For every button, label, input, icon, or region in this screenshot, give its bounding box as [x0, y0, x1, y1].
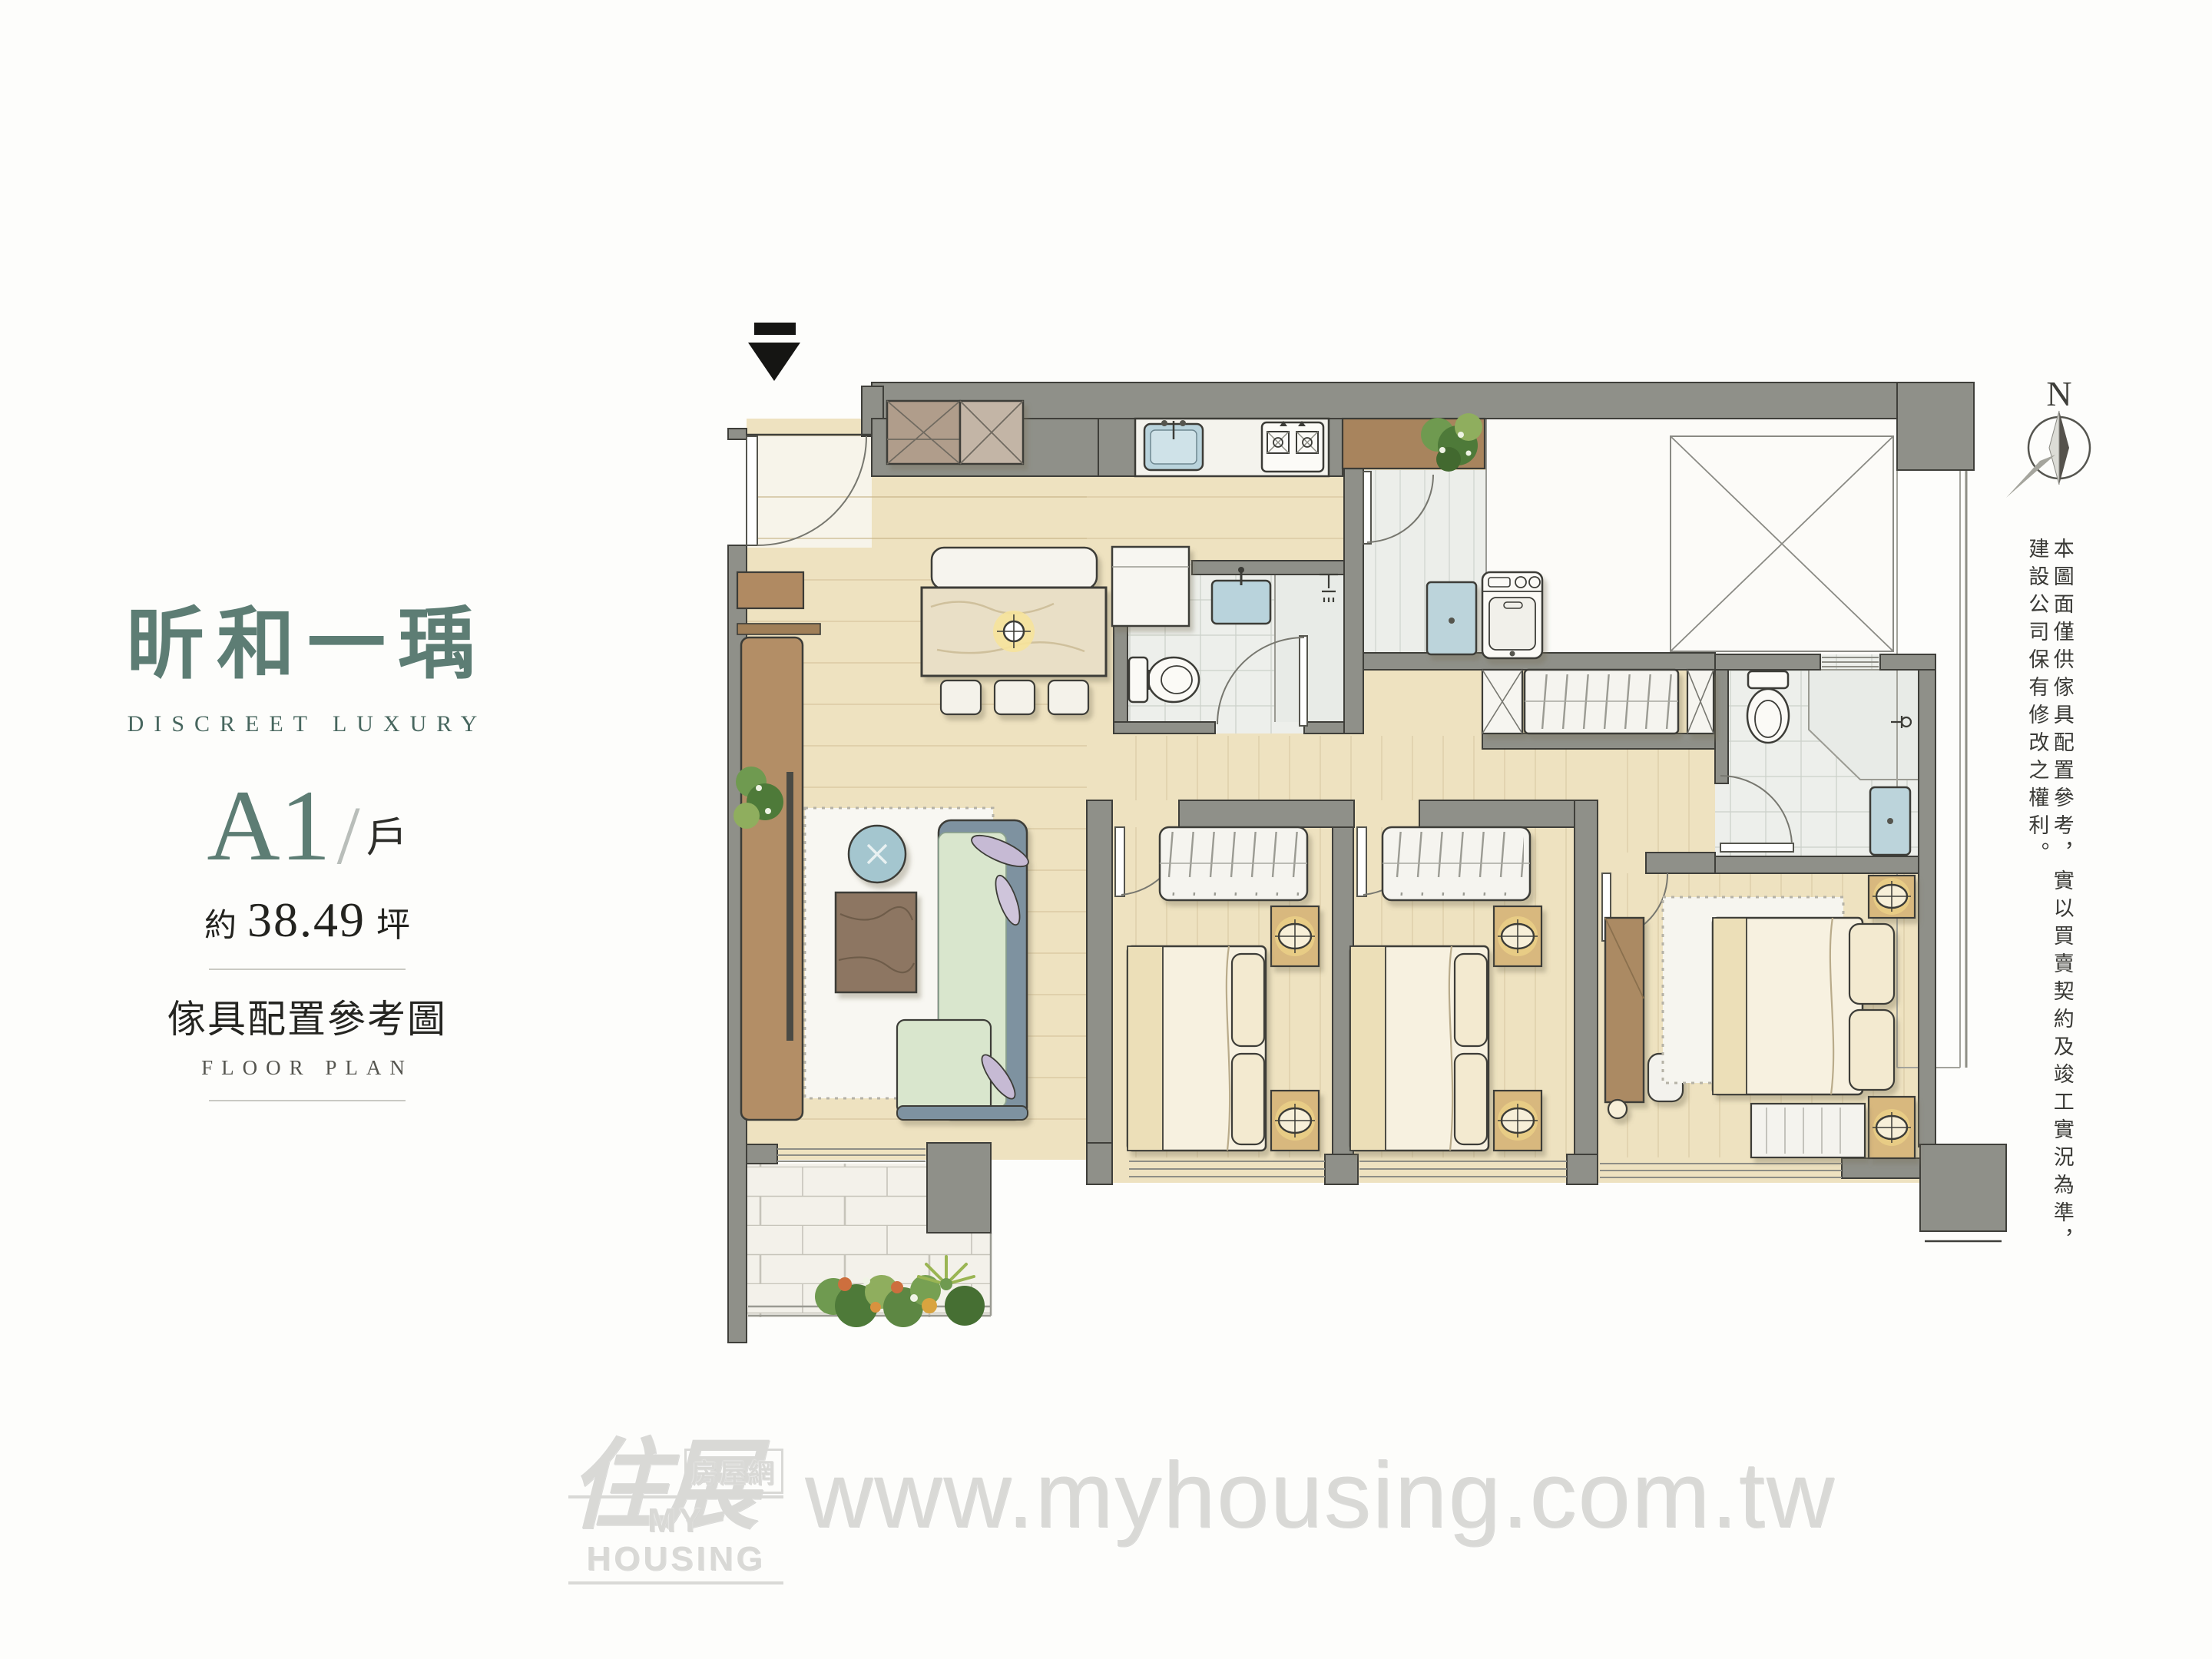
- plan-label-zh: 傢具配置參考圖: [92, 988, 522, 1044]
- watermark-url: www.myhousing.com.tw: [805, 1441, 1836, 1548]
- north-label: N: [2046, 374, 2071, 413]
- plan-label-en: FLOOR PLAN: [92, 1056, 522, 1080]
- area-unit: 坪: [376, 897, 410, 946]
- nightstand: [1494, 906, 1541, 966]
- shoe-cabinet: [887, 401, 1023, 464]
- bath2-sink-icon: [1870, 787, 1910, 855]
- side-stool: [849, 826, 906, 882]
- unit-divider: /: [337, 797, 360, 876]
- dining-chair: [995, 680, 1035, 714]
- tv-icon: [786, 772, 793, 1041]
- washing-machine-icon: [1482, 572, 1542, 658]
- watermark-brand-sub: 房屋網: [684, 1449, 783, 1494]
- entrance-arrow-icon: [748, 323, 800, 381]
- unit-code: A1: [207, 780, 330, 872]
- pillow: [1455, 954, 1487, 1046]
- nightstand: [1869, 876, 1915, 918]
- nightstand: [1271, 906, 1319, 966]
- north-compass: N: [2006, 374, 2090, 498]
- bed: [1350, 946, 1488, 1151]
- elevator-shaft: [1486, 419, 1897, 654]
- low-cabinet: [1751, 1104, 1865, 1157]
- refrigerator-cabinet: [1112, 547, 1189, 626]
- watermark-brand-en: MY HOUSING: [568, 1495, 783, 1584]
- project-title: 昕和一瑀: [92, 607, 522, 685]
- stove-icon: [1262, 421, 1323, 472]
- dining-bench: [932, 548, 1097, 589]
- nightstand: [1494, 1091, 1541, 1151]
- area-value: 38.49: [247, 892, 366, 949]
- dining-chair: [1048, 680, 1088, 714]
- coffee-table: [836, 892, 916, 992]
- laundry-sink-icon: [1427, 582, 1476, 654]
- wardrobe: [1160, 827, 1307, 900]
- pillow: [1455, 1054, 1487, 1144]
- pillow: [1232, 1054, 1264, 1144]
- dining-set: [922, 548, 1106, 714]
- project-subtitle: DISCREET LUXURY: [92, 711, 522, 737]
- pillow: [1849, 924, 1894, 1004]
- pillow: [1849, 1010, 1894, 1090]
- pillow: [1232, 954, 1264, 1046]
- kitchen-sink-icon: [1144, 420, 1203, 470]
- unit-type-label: 戶: [366, 803, 408, 872]
- dining-chair: [941, 680, 981, 714]
- divider-line: [209, 1100, 406, 1101]
- unit-area: 約 38.49 坪: [92, 892, 522, 949]
- nightstand: [1869, 1097, 1915, 1158]
- disclaimer-text: 本圖面僅供傢具配置參考，實以買賣契約及竣工實況為準，建設公司保有修改之權利。: [2025, 538, 2075, 1267]
- unit-row: A1 / 戶: [92, 780, 522, 872]
- nightstand: [1271, 1091, 1319, 1151]
- area-prefix: 約: [204, 899, 237, 946]
- wardrobe: [1382, 827, 1530, 900]
- toilet-2-icon: [1747, 671, 1789, 743]
- wood-shelf: [1343, 413, 1485, 472]
- desk-lamp-icon: [1608, 1100, 1627, 1118]
- divider-line: [209, 969, 406, 970]
- kitchen-counter: [1135, 419, 1329, 476]
- hall-closet: [1482, 670, 1714, 733]
- info-panel: 昕和一瑀 DISCREET LUXURY A1 / 戶 約 38.49 坪 傢具…: [92, 607, 522, 1101]
- watermark: 住展 房屋網 MY HOUSING www.myhousing.com.tw: [568, 1419, 1836, 1584]
- toilet-icon: [1129, 657, 1199, 702]
- watermark-logo: 住展 房屋網 MY HOUSING: [568, 1419, 783, 1584]
- bed: [1128, 946, 1266, 1151]
